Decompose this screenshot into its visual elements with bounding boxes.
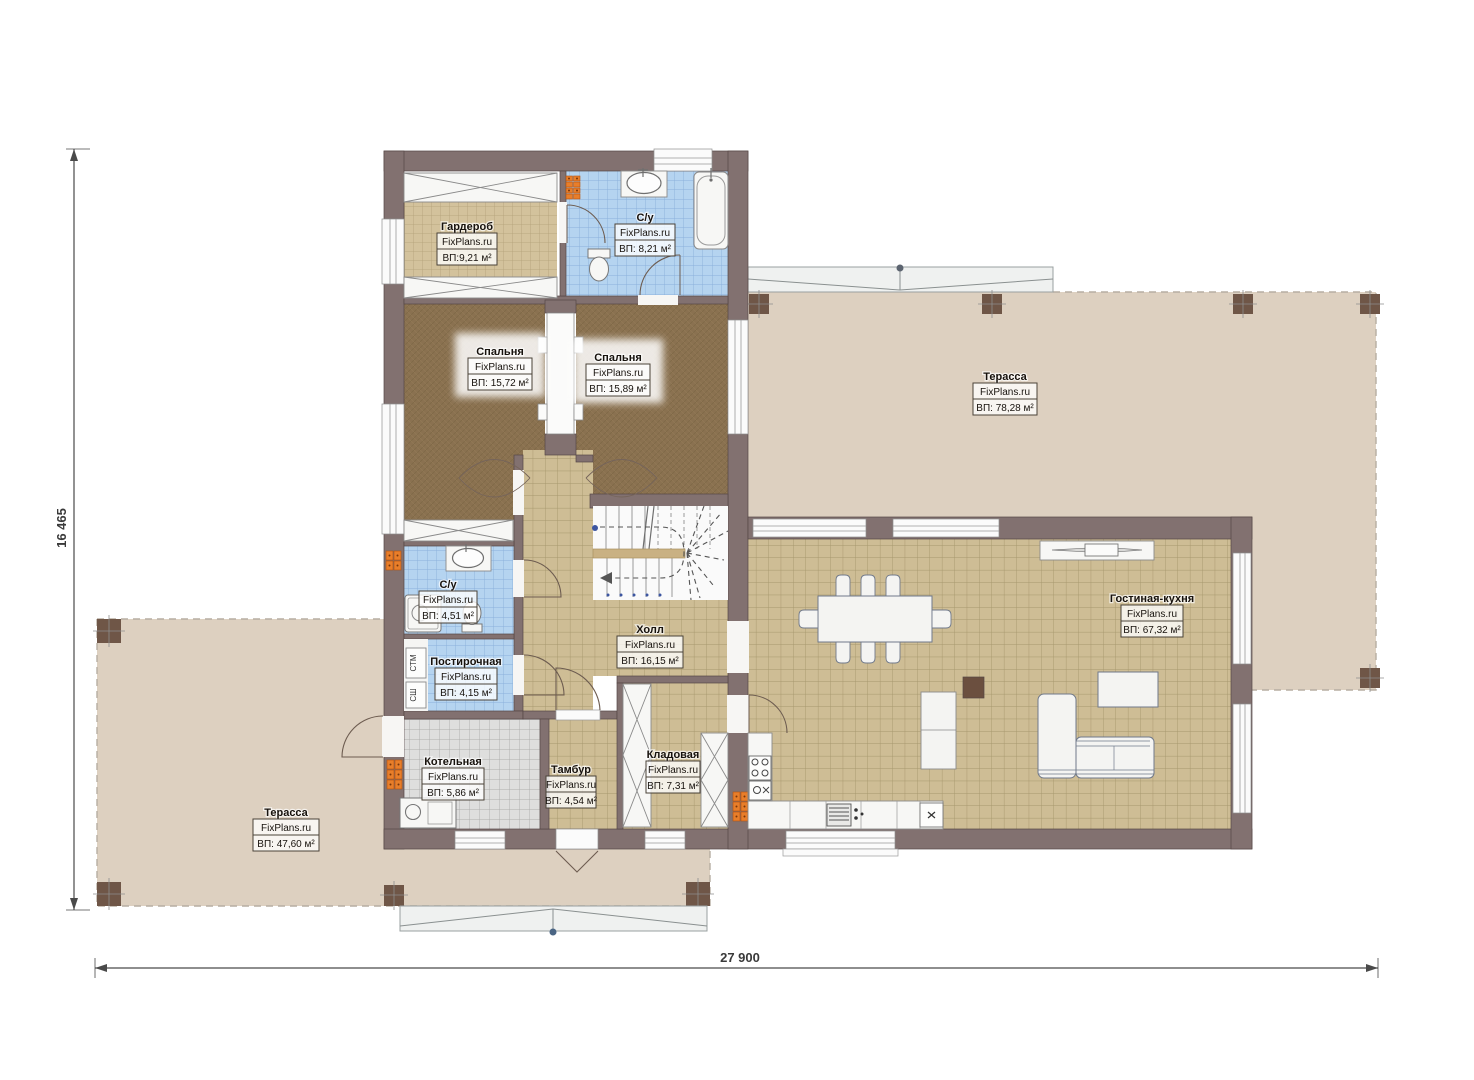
- svg-text:ВП: 67,32 м²: ВП: 67,32 м²: [1123, 625, 1181, 636]
- svg-text:СШ: СШ: [409, 688, 418, 701]
- svg-text:FixPlans.ru: FixPlans.ru: [428, 772, 478, 783]
- svg-text:FixPlans.ru: FixPlans.ru: [593, 368, 643, 379]
- svg-text:ВП: 5,86 м²: ВП: 5,86 м²: [427, 788, 480, 799]
- svg-text:Кладовая: Кладовая: [647, 749, 700, 761]
- svg-text:FixPlans.ru: FixPlans.ru: [261, 823, 311, 834]
- svg-text:Холл: Холл: [636, 624, 664, 636]
- svg-text:Спальня: Спальня: [476, 346, 524, 358]
- svg-text:16 465: 16 465: [54, 508, 69, 548]
- svg-text:FixPlans.ru: FixPlans.ru: [625, 640, 675, 651]
- svg-text:ВП: 16,15 м²: ВП: 16,15 м²: [621, 656, 679, 667]
- svg-text:ВП: 7,31 м²: ВП: 7,31 м²: [647, 781, 700, 792]
- svg-text:СТМ: СТМ: [409, 654, 418, 671]
- svg-text:27 900: 27 900: [720, 950, 760, 965]
- svg-text:FixPlans.ru: FixPlans.ru: [620, 228, 670, 239]
- svg-text:С/у: С/у: [636, 212, 654, 224]
- svg-text:ВП:9,21 м²: ВП:9,21 м²: [442, 253, 492, 264]
- svg-text:FixPlans.ru: FixPlans.ru: [1127, 609, 1177, 620]
- svg-text:ВП: 15,72 м²: ВП: 15,72 м²: [471, 378, 529, 389]
- svg-text:Спальня: Спальня: [594, 352, 642, 364]
- svg-text:FixPlans.ru: FixPlans.ru: [423, 595, 473, 606]
- svg-text:ВП: 47,60 м²: ВП: 47,60 м²: [257, 839, 315, 850]
- svg-text:FixPlans.ru: FixPlans.ru: [546, 780, 596, 791]
- svg-text:С/у: С/у: [439, 579, 457, 591]
- svg-text:ВП: 4,15 м²: ВП: 4,15 м²: [440, 688, 493, 699]
- svg-text:FixPlans.ru: FixPlans.ru: [475, 362, 525, 373]
- svg-text:FixPlans.ru: FixPlans.ru: [441, 672, 491, 683]
- svg-text:FixPlans.ru: FixPlans.ru: [442, 237, 492, 248]
- svg-text:FixPlans.ru: FixPlans.ru: [648, 765, 698, 776]
- svg-text:ВП: 8,21 м²: ВП: 8,21 м²: [619, 244, 672, 255]
- svg-text:Тамбур: Тамбур: [551, 764, 591, 776]
- svg-text:Терасса: Терасса: [264, 807, 308, 819]
- svg-text:Котельная: Котельная: [424, 756, 482, 768]
- svg-text:FixPlans.ru: FixPlans.ru: [980, 387, 1030, 398]
- svg-text:Терасса: Терасса: [983, 371, 1027, 383]
- svg-text:Постирочная: Постирочная: [430, 656, 501, 668]
- svg-text:ВП: 15,89 м²: ВП: 15,89 м²: [589, 384, 647, 395]
- svg-text:ВП: 4,51 м²: ВП: 4,51 м²: [422, 611, 475, 622]
- svg-text:ВП: 78,28 м²: ВП: 78,28 м²: [976, 403, 1034, 414]
- svg-text:Гардероб: Гардероб: [441, 221, 493, 233]
- svg-text:Гостиная-кухня: Гостиная-кухня: [1110, 593, 1194, 605]
- svg-text:ВП: 4,54 м²: ВП: 4,54 м²: [545, 796, 598, 807]
